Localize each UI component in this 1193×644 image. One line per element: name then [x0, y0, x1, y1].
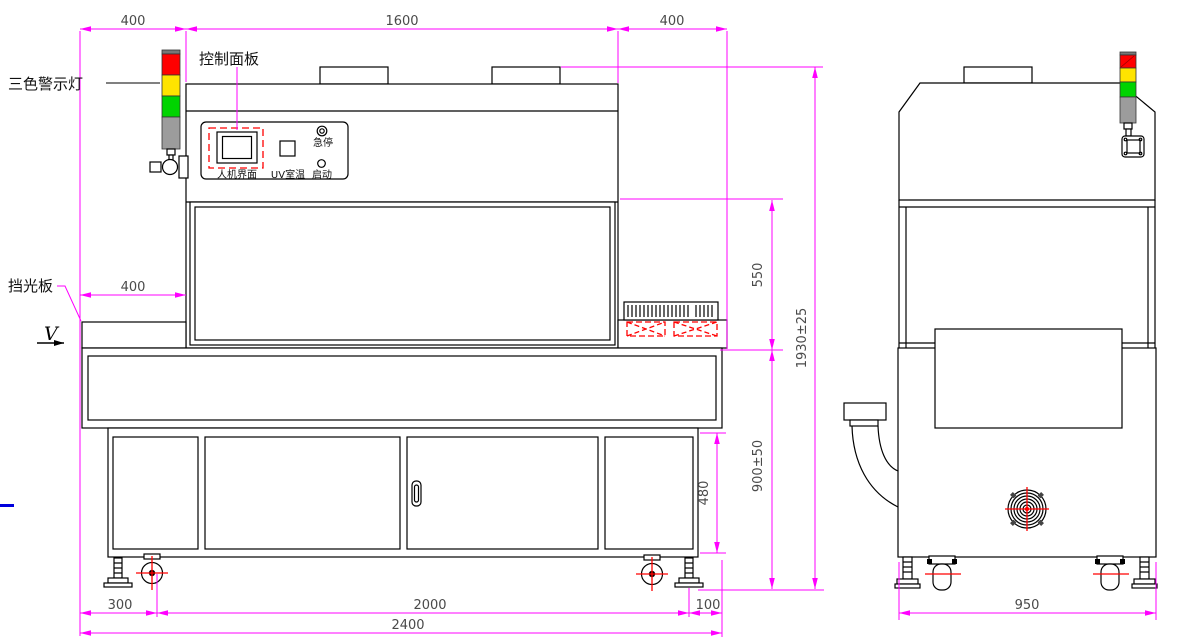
dim-chamber-height: 550: [751, 263, 766, 288]
tower-neck: [167, 149, 175, 155]
light-shield-label: 挡光板: [8, 277, 53, 295]
caster-bolt: [952, 559, 957, 564]
cabinet-panel-4: [605, 437, 693, 549]
tower-ball-joint: [163, 160, 178, 175]
side-roof-vent: [964, 67, 1032, 83]
caster-bolt: [1095, 559, 1100, 564]
dim-bottom-total: 2400: [391, 618, 424, 633]
caster-side-right: [1093, 556, 1129, 590]
dim-top-right: 400: [660, 14, 685, 29]
side-view: [844, 52, 1157, 590]
warning-light-label: 三色警示灯: [8, 75, 83, 93]
estop-label: 急停: [313, 136, 333, 149]
hmi-label: 人机界面: [217, 168, 257, 181]
caster-side-left: [925, 556, 961, 590]
foot-pad: [1132, 584, 1157, 588]
dim-mid-left: 400: [121, 280, 146, 295]
tower-green-segment: [162, 96, 180, 117]
tower-cap: [1120, 52, 1136, 55]
caster-front-right: [636, 555, 668, 591]
foot-pad: [675, 583, 703, 587]
uv-machine-drawing: 人机界面 UV室温 急停 启动: [0, 0, 1193, 644]
cabinet-panel-2: [205, 437, 400, 549]
uv-temp-indicator: [280, 141, 295, 156]
leveling-foot-front-right: [675, 558, 703, 587]
foot-stem: [1140, 557, 1149, 579]
control-panel: 人机界面 UV室温 急停 启动: [201, 122, 348, 181]
caster-wheel: [1101, 564, 1119, 590]
duct-flange: [844, 403, 886, 420]
dim-cabinet-height: 480: [697, 481, 712, 506]
tower-wall-bracket: [179, 156, 188, 178]
tower-gray-segment: [162, 117, 180, 149]
front-view: 人机界面 UV室温 急停 启动: [82, 50, 727, 591]
hmi-screen[interactable]: [223, 137, 252, 159]
tower-cap: [162, 50, 180, 54]
dim-bottom-center: 2000: [413, 598, 446, 613]
caster-bracket: [929, 556, 955, 564]
caster-bracket: [1097, 556, 1123, 564]
front-roof-vent-right: [492, 67, 560, 84]
foot-base: [897, 579, 918, 584]
caster-wheel: [933, 564, 951, 590]
table-band-inner: [88, 356, 716, 420]
light-shield-leader: [57, 286, 81, 321]
control-panel-label: 控制面板: [199, 50, 259, 68]
caster-crosshair: [136, 556, 168, 590]
start-label: 启动: [312, 168, 332, 181]
light-shield-shelf: [82, 322, 186, 348]
foot-base: [108, 578, 128, 583]
tower-pin: [1126, 129, 1131, 136]
tower-red-segment: [162, 54, 180, 75]
caster-bolt: [1120, 559, 1125, 564]
caster-front-left: [136, 554, 168, 590]
foot-base: [1134, 579, 1155, 584]
dim-bottom-left: 300: [108, 598, 133, 613]
foot-pad: [104, 583, 132, 587]
chamber-window-inner: [195, 207, 610, 340]
leveling-foot-side-right: [1132, 557, 1157, 588]
dim-top-left: 400: [121, 14, 146, 29]
dim-overall-height: 1930±25: [795, 308, 810, 369]
tower-gray-segment: [1120, 97, 1136, 123]
dim-side-width: 950: [1015, 598, 1040, 613]
tower-mount-box-inner: [1127, 140, 1140, 153]
cabinet-panel-1: [113, 437, 198, 549]
warning-tower-front: [150, 50, 188, 178]
exhaust-duct: [844, 403, 898, 507]
exit-shelf: [618, 320, 727, 348]
tower-bolt: [150, 162, 161, 172]
duct-inner-curve: [878, 426, 898, 471]
tower-neck: [1124, 123, 1132, 129]
dim-table-height: 900±50: [751, 440, 766, 492]
side-conveyor-box: [935, 329, 1122, 428]
tower-yellow-segment: [1120, 68, 1136, 82]
leveling-foot-front-left: [104, 558, 132, 587]
tower-yellow-segment: [162, 75, 180, 96]
tower-green-segment: [1120, 82, 1136, 97]
fan-center-dot: [1025, 507, 1029, 511]
caster-bolt: [927, 559, 932, 564]
uv-temp-label: UV室温: [271, 168, 305, 181]
front-roof-vent-left: [320, 67, 388, 84]
caster-crosshair: [636, 557, 668, 591]
duct-neck: [850, 420, 878, 426]
blue-mark: [0, 504, 14, 507]
view-marker-label: V: [44, 323, 60, 345]
cabinet-panel-3: [407, 437, 598, 549]
foot-base: [679, 578, 699, 583]
foot-stem: [903, 557, 912, 579]
dim-bottom-right: 100: [696, 598, 721, 613]
cad-drawing-canvas: 人机界面 UV室温 急停 启动: [0, 0, 1193, 644]
side-hood: [899, 83, 1155, 200]
dim-top-center: 1600: [385, 14, 418, 29]
